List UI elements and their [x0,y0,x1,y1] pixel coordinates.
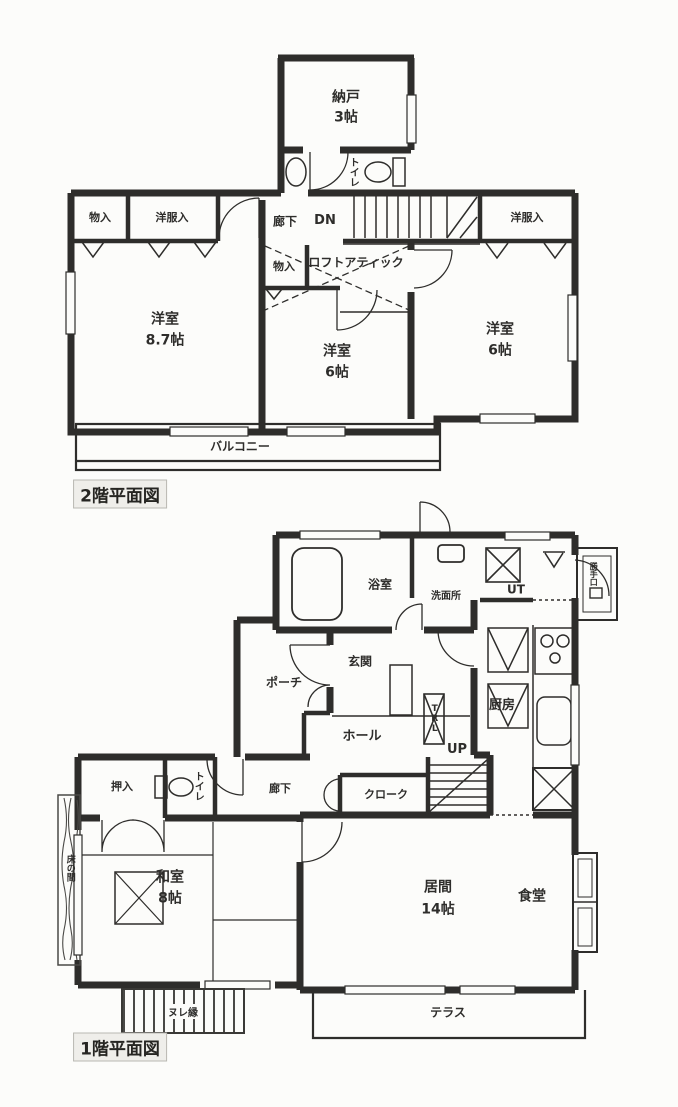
floor1-genkan-details [332,665,470,716]
room-size-washitsu: 8帖 [158,892,182,907]
floor2-stairs [343,196,480,244]
room-label-kitchen: 厨房 [489,699,515,713]
floor1-toilet-fixture [155,776,193,798]
floor1-bay-window [573,853,597,952]
room-label-bath: 浴室 [368,579,392,592]
label-stairs-up: UP [447,743,467,757]
label-cloak: クローク [364,789,408,801]
room-size-east: 6帖 [488,344,512,359]
label-stairs-down: DN [314,214,336,228]
label-storage-middle: 物入 [273,261,295,273]
room-label-toilet-2f: トイレ [347,157,358,187]
nureen-deck: ヌレ縁 [121,988,245,1034]
floor1-stairs-up [428,759,490,813]
room-label-hall: ホール [342,730,381,744]
floor1-kitchen-fixtures [488,625,575,810]
label-trl-column: TRL [429,704,438,734]
floorplan-canvas: 納戸 3帖 トイレ 廊下 DN 物入 洋服入 洋服入 物入 ロフトアティック 洋… [0,0,678,1107]
room-size-west: 8.7帖 [146,334,185,349]
label-nureen: ヌレ縁 [166,1004,200,1019]
room-label-washroom: 洗面所 [431,592,461,603]
label-tokonoma: 床の間 [64,855,73,882]
room-label-dining: 食堂 [518,890,546,905]
room-label-ut: UT [507,584,525,597]
label-terrace: テラス [430,1007,466,1020]
room-size-center: 6帖 [325,366,349,381]
label-closet-topright: 洋服入 [511,212,544,224]
room-label-center: 洋室 [323,345,351,360]
room-label-entrance: 玄関 [348,656,372,669]
room-size-nando: 3帖 [334,111,358,126]
floor1-tatami-lines [80,822,300,985]
label-closet-topleft: 洋服入 [156,212,189,224]
room-label-east: 洋室 [486,323,514,338]
room-label-toilet-1f: トイレ [192,771,203,801]
room-label-nando: 納戸 [332,91,360,106]
label-oshiire: 押入 [111,781,133,793]
label-porch: ポーチ [266,677,302,690]
floor2-thin-lines [82,242,566,312]
floor1-walls-thick [78,535,575,990]
floor1-title: 1階平面図 [73,1033,167,1062]
floor2-fixtures [286,158,405,186]
floor1-walls-mid [165,535,533,818]
room-size-living: 14帖 [421,903,454,918]
floorplan-linework [0,0,678,1107]
label-corridor-1f: 廊下 [269,783,291,795]
floor1-ut-fixtures [486,548,565,582]
label-corridor-2f: 廊下 [273,216,297,229]
room-label-living: 居間 [424,881,452,896]
room-label-washitsu: 和室 [156,871,184,886]
label-storage-topleft: 物入 [89,212,111,224]
floor2-walls-mid [71,193,575,288]
floor2-title: 2階平面図 [73,480,167,509]
label-back-door: 勝手口 [589,562,597,586]
label-balcony: バルコニー [210,441,270,454]
label-loft-attic: ロフトアティック [308,257,403,270]
floor2-walls-thick [71,58,575,432]
room-label-west: 洋室 [151,313,179,328]
